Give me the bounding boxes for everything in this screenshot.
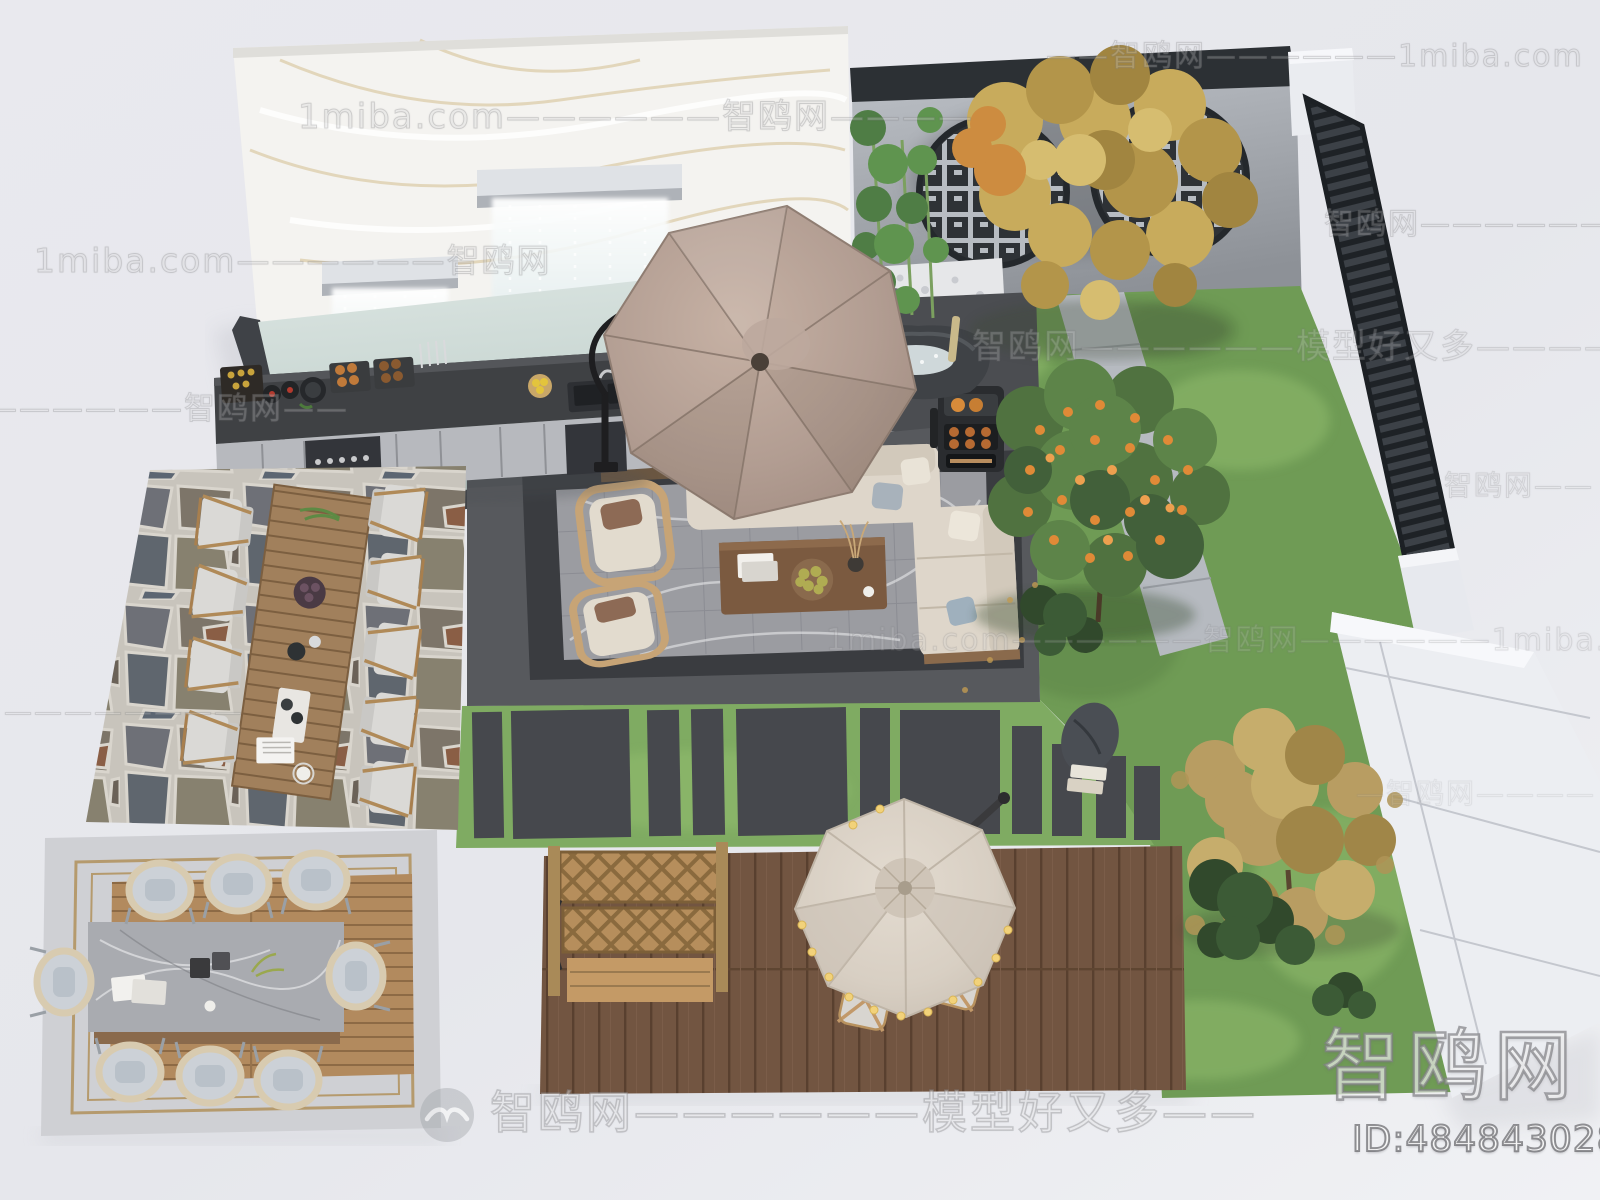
newspaper	[256, 737, 294, 763]
woven-chair	[30, 948, 91, 1016]
grill-tray	[373, 357, 415, 390]
throw-pillow	[900, 456, 931, 486]
render-canvas: ——智鸥网——————1miba.com 1miba.com——————智鸥网—…	[0, 0, 1600, 1200]
throw-pillow	[947, 510, 981, 542]
throw-pillow	[871, 482, 904, 511]
long-dining-set	[181, 482, 427, 816]
grill-tray	[329, 361, 371, 394]
courtyard-scene	[0, 0, 1600, 1200]
marble-dining-table	[88, 922, 344, 1044]
stone-platform	[30, 830, 441, 1136]
lattice-bench	[548, 842, 728, 1002]
bbq-grill	[930, 386, 1004, 472]
